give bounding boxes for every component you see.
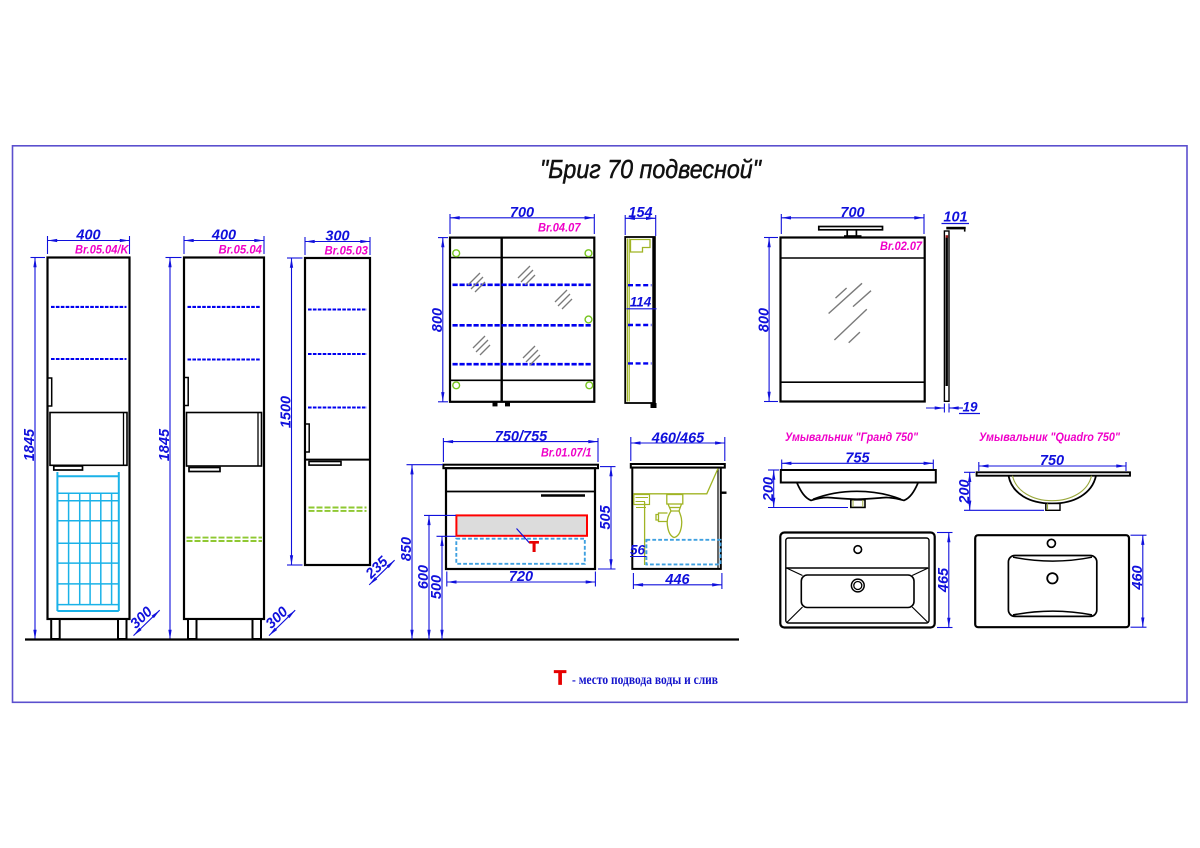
svg-text:Br.05.03: Br.05.03 [325, 244, 369, 258]
svg-text:Br.01.07/1: Br.01.07/1 [541, 446, 592, 460]
svg-text:800: 800 [756, 308, 772, 332]
svg-text:1845: 1845 [22, 428, 38, 461]
svg-text:Умывальник "Quadro 750": Умывальник "Quadro 750" [979, 432, 1121, 444]
svg-text:460: 460 [1130, 565, 1146, 590]
svg-text:56: 56 [630, 543, 646, 558]
svg-text:Br.05.04: Br.05.04 [219, 243, 263, 257]
svg-text:465: 465 [936, 567, 952, 593]
svg-text:400: 400 [211, 228, 236, 244]
svg-text:505: 505 [598, 504, 614, 529]
svg-text:800: 800 [430, 308, 446, 332]
svg-text:750: 750 [1040, 453, 1064, 469]
svg-text:Умывальник "Гранд 750": Умывальник "Гранд 750" [785, 432, 919, 444]
svg-text:114: 114 [630, 295, 652, 310]
svg-text:300: 300 [127, 604, 156, 632]
svg-text:720: 720 [509, 569, 533, 585]
svg-text:200: 200 [957, 479, 973, 504]
svg-text:Т: Т [554, 668, 566, 690]
svg-text:1845: 1845 [157, 428, 173, 461]
svg-text:Br.05.04/K: Br.05.04/K [75, 243, 130, 257]
svg-text:"Бриг 70 подвесной": "Бриг 70 подвесной" [540, 154, 763, 184]
svg-text:19: 19 [963, 400, 979, 415]
svg-text:Т: Т [530, 539, 539, 556]
svg-text:154: 154 [628, 205, 652, 221]
svg-text:300: 300 [325, 229, 349, 245]
svg-text:1500: 1500 [279, 396, 295, 428]
svg-text:460/465: 460/465 [651, 430, 705, 446]
svg-text:200: 200 [761, 477, 777, 502]
svg-text:446: 446 [664, 572, 690, 588]
svg-text:755: 755 [845, 451, 870, 467]
svg-text:Br.02.07: Br.02.07 [880, 239, 923, 253]
svg-text:750/755: 750/755 [495, 429, 548, 445]
svg-text:700: 700 [840, 205, 864, 221]
svg-text:700: 700 [510, 205, 534, 221]
svg-text:300: 300 [263, 604, 292, 632]
svg-text:Br.04.07: Br.04.07 [538, 221, 582, 235]
svg-text:400: 400 [75, 228, 100, 244]
svg-text:- место подвода воды и слив: - место подвода воды и слив [572, 673, 718, 688]
svg-text:500: 500 [429, 575, 445, 599]
svg-text:850: 850 [399, 537, 415, 561]
